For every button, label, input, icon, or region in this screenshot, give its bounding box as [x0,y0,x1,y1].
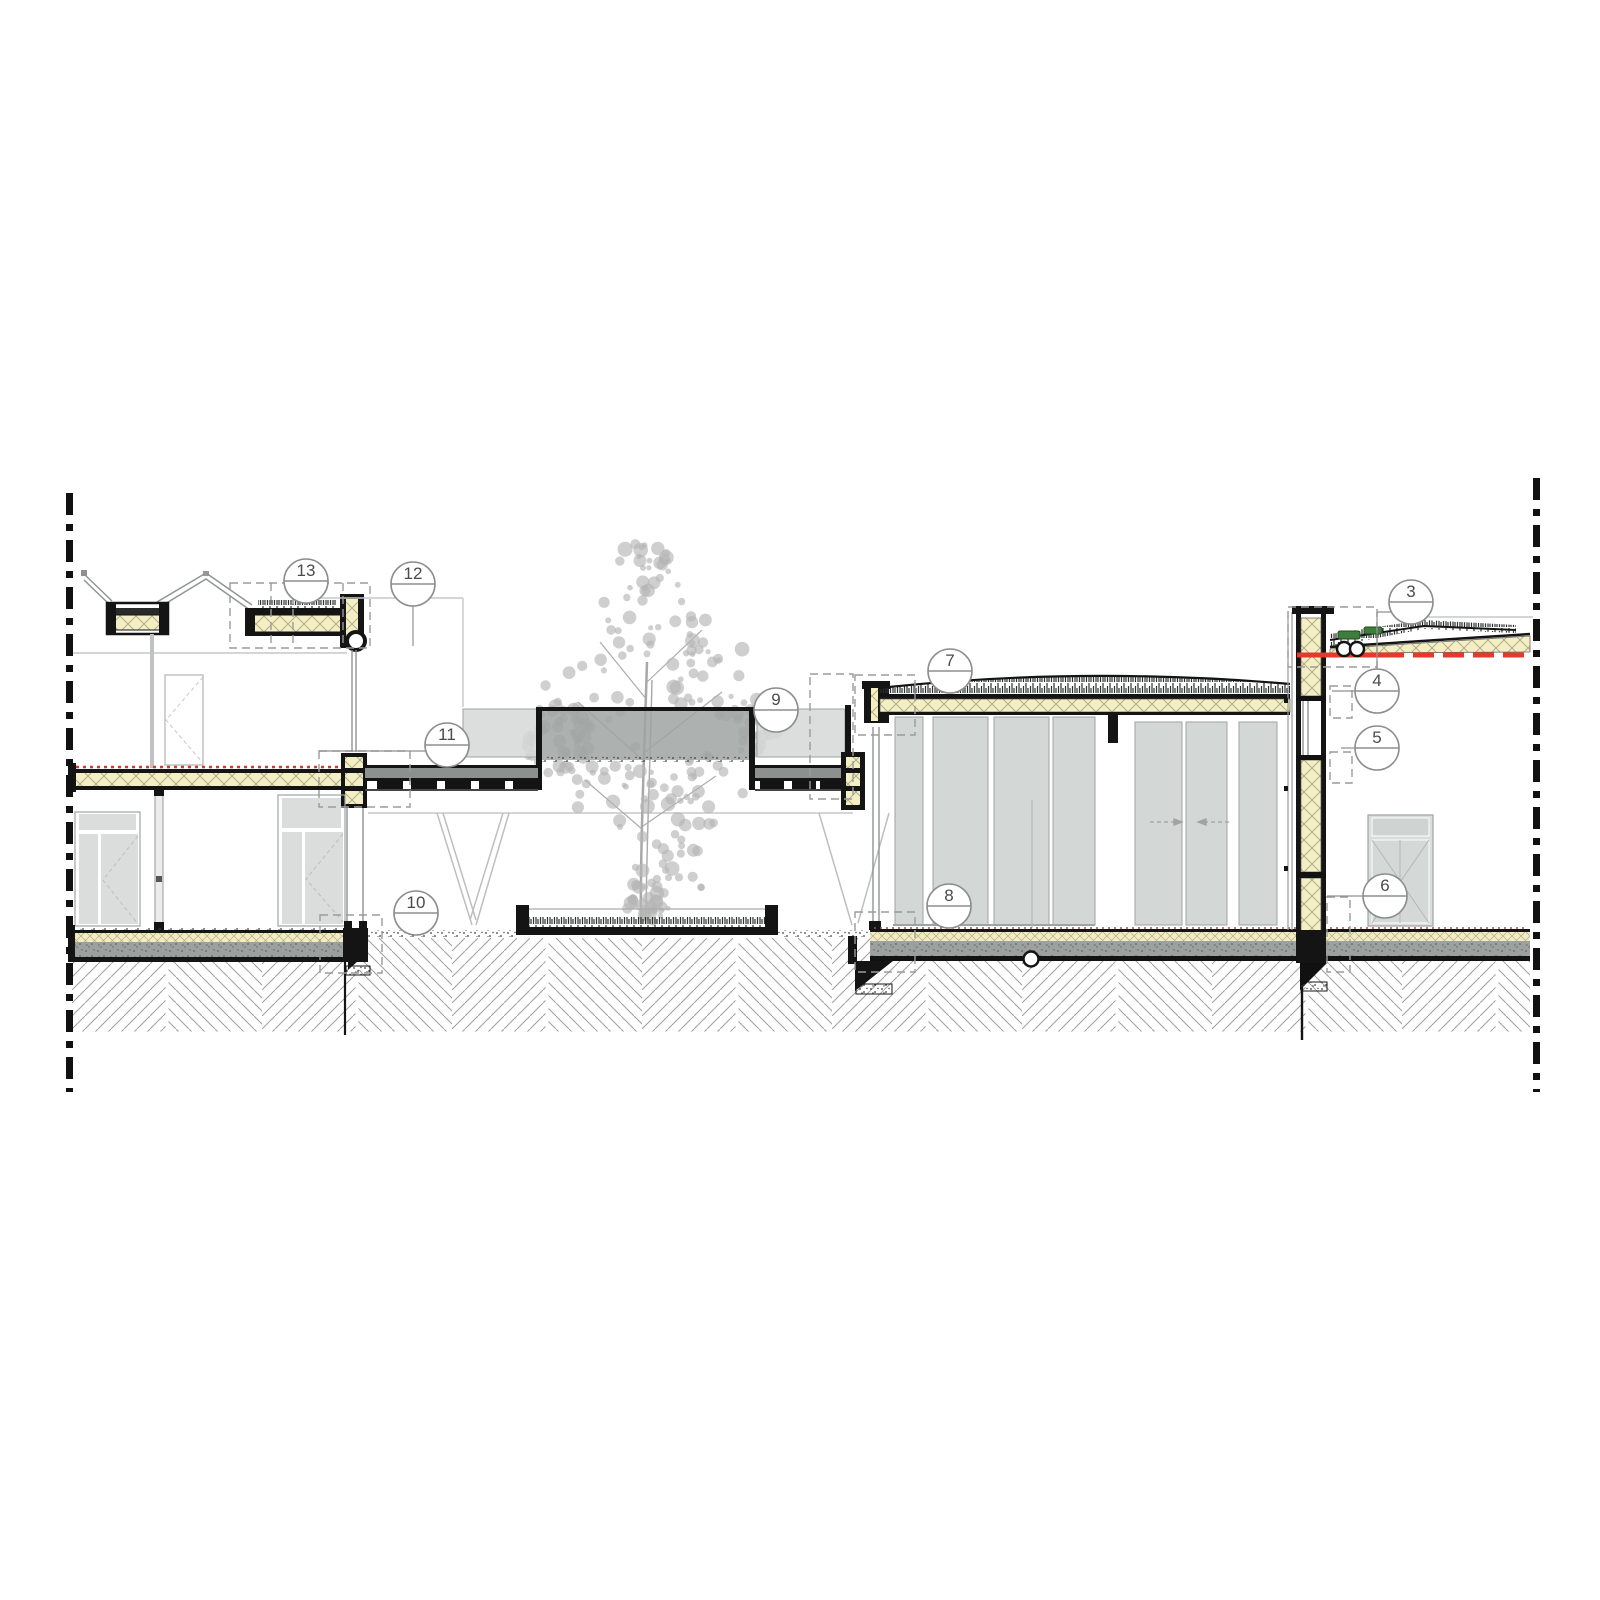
door-mullion [155,790,163,930]
upper-wall-line [150,634,154,768]
upper-door [165,675,203,765]
callout-9: 9 [754,688,798,732]
band-dark-panel [541,711,751,760]
far-right-structure [1297,617,1533,926]
green-roof-plant [1364,627,1382,634]
ground-floor-glazing-left [75,788,345,930]
gravel-strip-left [368,930,516,937]
callout-12: 12 [391,562,435,606]
green-roof-plant [1338,631,1360,639]
callout-3: 3 [1389,580,1433,624]
callout-4: 4 [1355,669,1399,713]
callout-11-label: 11 [438,725,456,744]
courtyard-door-frame-left [344,808,367,930]
callout-7-label: 7 [945,651,954,670]
callout-3-label: 3 [1406,582,1415,601]
roof-box-right-green [245,594,365,752]
callout-4-label: 4 [1372,671,1381,690]
callout-13-label: 13 [297,561,316,580]
callout-5: 5 [1355,726,1399,770]
planter-grass [529,917,765,927]
callout-13: 13 [284,559,328,603]
roof-box-left [107,603,168,634]
section-drawing: 13 12 11 9 7 8 10 3 4 5 6 [0,0,1600,1600]
section-drawing-canvas: 13 12 11 9 7 8 10 3 4 5 6 [0,0,1600,1600]
callout-9-label: 9 [771,690,780,709]
glazing-fixed [893,717,1095,928]
callout-7: 7 [928,649,972,693]
drain-pipe [1024,952,1039,967]
callout-6-label: 6 [1380,876,1389,895]
callout-5-label: 5 [1372,728,1381,747]
callout-10-label: 10 [407,893,426,912]
callout-8: 8 [927,884,971,928]
planter [516,905,778,935]
walkway-deck-left [365,765,538,791]
callout-11: 11 [425,723,469,767]
callout-8-label: 8 [944,886,953,905]
callout-10: 10 [394,891,438,935]
roof-bracket [1108,715,1118,743]
gravel-strip-right [778,930,870,937]
callout-6: 6 [1363,874,1407,918]
downpipe [352,650,356,752]
glazing-sliding [1135,722,1277,925]
callout-12-label: 12 [404,564,423,583]
conduit-pipes [1337,642,1364,656]
